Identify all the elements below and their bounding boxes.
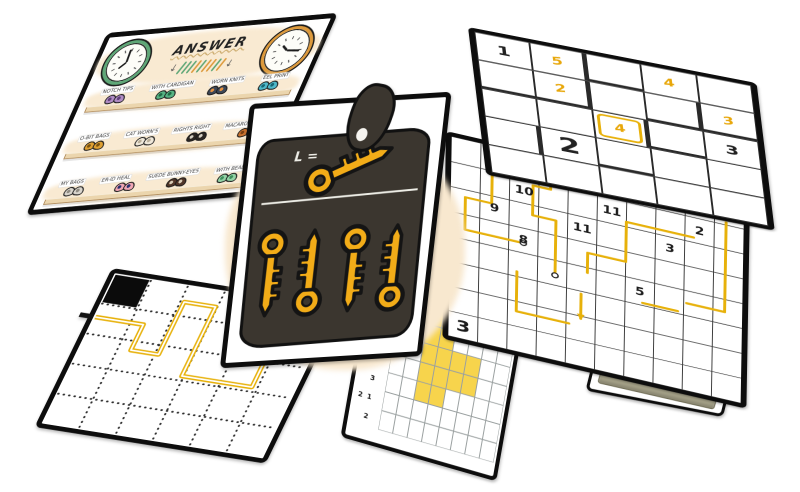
- sudoku-number: 3: [720, 115, 737, 128]
- clock-tick: [111, 69, 114, 71]
- clock-tick: [297, 37, 300, 40]
- clock-tick: [136, 49, 139, 52]
- sudoku-number: 3: [724, 142, 739, 159]
- sudoku-number: 2: [557, 133, 582, 160]
- row-clue: 2 1: [357, 390, 373, 402]
- clock-tick: [133, 67, 135, 69]
- puzzle-cards-collage: ANSWER ↓ ↓ NOTCH TIPSWITH CARDIGANWORN K…: [0, 0, 800, 492]
- keys-card: L =: [220, 92, 452, 369]
- clock-tick: [112, 63, 115, 64]
- clock-tick: [294, 55, 296, 57]
- clock-tick: [272, 51, 275, 52]
- grid-number: 3: [665, 242, 675, 256]
- clock-tick: [288, 60, 289, 63]
- shelf: MY BAGSER-ID HEALSUEDE BUNNY-EYESWITH BE…: [43, 164, 259, 205]
- clock-tick: [139, 54, 142, 56]
- clock-minute-hand: [286, 49, 299, 51]
- answer-title-block: ANSWER ↓ ↓: [141, 28, 274, 78]
- clock-minute-hand: [125, 49, 132, 62]
- grid-number: 3: [456, 316, 471, 337]
- tick-slot: [178, 58, 226, 75]
- sudoku-number: 5: [549, 55, 566, 68]
- grid-number: 5: [635, 285, 645, 299]
- clock-tick: [138, 61, 141, 62]
- clock-tick: [277, 44, 279, 46]
- clock-hour-hand: [118, 62, 127, 70]
- clock-tick: [271, 57, 274, 59]
- slipper-pair: [82, 140, 106, 151]
- keys-row: [244, 199, 419, 342]
- clock-tick: [292, 36, 294, 39]
- slipper-pair: [133, 135, 157, 146]
- clock-tick: [280, 62, 282, 65]
- sudoku-number: 2: [553, 82, 570, 95]
- slipper-pair: [185, 131, 209, 142]
- clock-tick: [117, 56, 119, 58]
- clock-tick: [274, 61, 277, 64]
- row-clue: 2: [363, 412, 370, 421]
- row-clue: 3: [370, 374, 377, 383]
- sudoku-number: 4: [661, 77, 678, 90]
- grid-number: 2: [695, 224, 705, 238]
- clock-tick: [119, 75, 121, 78]
- sudoku-number: 1: [496, 43, 511, 60]
- grid-number: 9: [490, 202, 500, 216]
- grid-number: 8: [518, 234, 528, 248]
- clock-tick: [124, 51, 125, 54]
- clock-tick: [300, 42, 303, 44]
- clock-tick: [285, 38, 286, 41]
- clock-tick: [113, 73, 116, 76]
- clock-tick: [127, 72, 128, 75]
